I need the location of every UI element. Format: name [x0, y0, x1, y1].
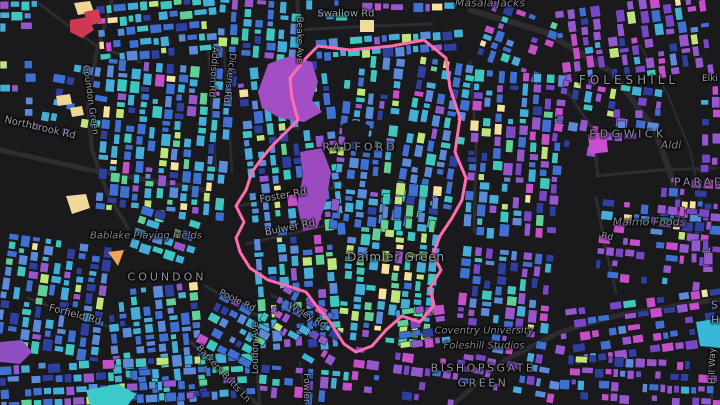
- building-cluster: [0, 1, 37, 32]
- landmark-shape: [70, 106, 84, 117]
- landmark-shape: [588, 132, 608, 154]
- map-svg: [0, 0, 720, 405]
- landmark-shape: [360, 20, 374, 32]
- building-cluster: [700, 86, 720, 172]
- building-cluster: [93, 58, 238, 228]
- building-cluster: [0, 61, 36, 116]
- building-cluster: [257, 364, 353, 405]
- building-cluster: [32, 58, 113, 142]
- building-cluster: [306, 0, 347, 21]
- landmark-shape: [66, 194, 90, 214]
- building-cluster: [362, 2, 455, 12]
- building-cluster: [462, 69, 568, 244]
- building-cluster: [559, 354, 720, 405]
- building-cluster: [454, 245, 556, 339]
- building-cluster: [458, 329, 567, 405]
- building-cluster: [349, 345, 465, 405]
- landmark-shape: [56, 94, 72, 106]
- building-cluster: [96, 0, 223, 64]
- landmark-shape: [297, 148, 331, 231]
- buildings-layer: [0, 0, 720, 405]
- building-cluster: [554, 0, 718, 95]
- map-canvas[interactable]: RADFORDCOUNDONFOLESHILLEDGWICKBISHOPSGAT…: [0, 0, 720, 405]
- building-cluster: [691, 240, 713, 272]
- landmark-shape: [696, 318, 720, 348]
